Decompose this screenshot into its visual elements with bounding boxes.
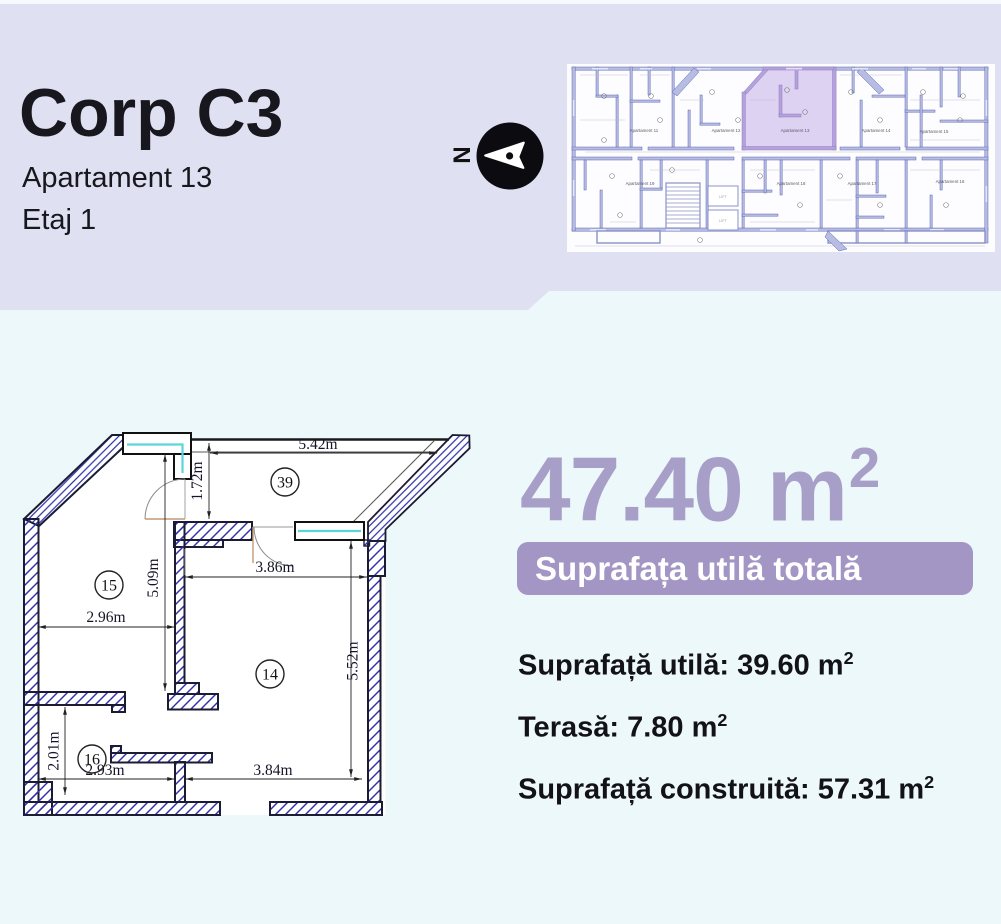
svg-text:1.72m: 1.72m	[189, 461, 206, 500]
svg-text:Apartament 18: Apartament 18	[777, 181, 806, 186]
svg-text:39: 39	[277, 475, 293, 492]
svg-text:Apartament 19: Apartament 19	[626, 181, 655, 186]
svg-text:3.84m: 3.84m	[253, 762, 292, 779]
svg-text:15: 15	[101, 578, 117, 595]
svg-text:2.96m: 2.96m	[86, 609, 125, 626]
svg-text:Apartament 13: Apartament 13	[781, 128, 810, 133]
svg-text:Apartament 17: Apartament 17	[848, 181, 877, 186]
svg-text:Apartament 11: Apartament 11	[630, 128, 659, 133]
svg-text:N: N	[448, 146, 475, 163]
svg-text:5.42m: 5.42m	[298, 436, 337, 453]
svg-text:14: 14	[262, 667, 278, 684]
svg-text:Apartament 15: Apartament 15	[920, 129, 949, 134]
svg-text:5.52m: 5.52m	[345, 641, 362, 680]
svg-text:3.86m: 3.86m	[255, 559, 294, 576]
svg-text:2.01m: 2.01m	[46, 731, 63, 770]
svg-text:Apartament 14: Apartament 14	[862, 128, 891, 133]
svg-text:LIFT: LIFT	[719, 195, 727, 199]
svg-text:Apartament 12: Apartament 12	[712, 128, 741, 133]
svg-text:Apartament 16: Apartament 16	[936, 179, 965, 184]
svg-text:LIFT: LIFT	[719, 219, 727, 223]
svg-text:5.09m: 5.09m	[145, 558, 162, 597]
svg-text:16: 16	[84, 752, 100, 769]
